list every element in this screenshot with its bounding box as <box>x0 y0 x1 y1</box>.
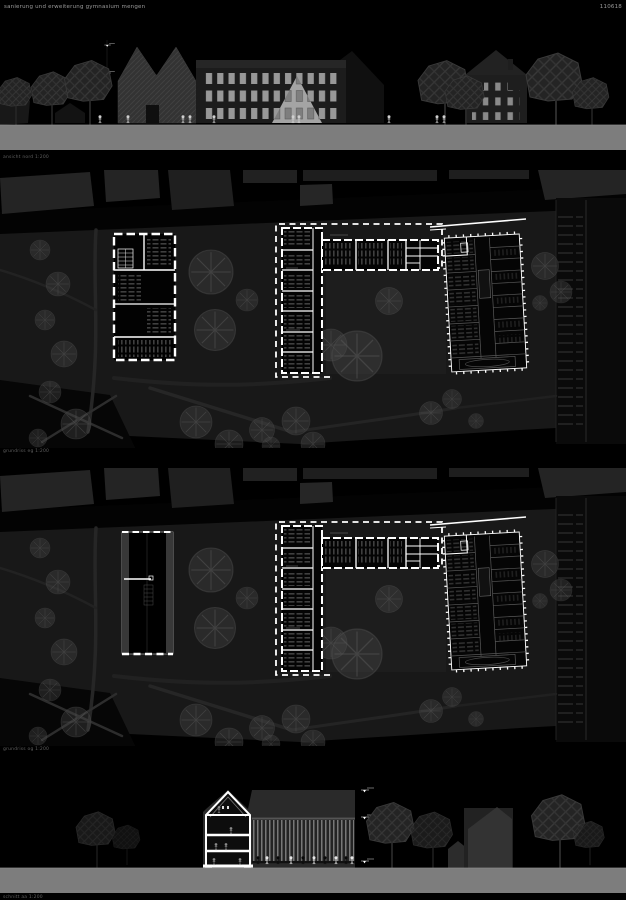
site-plan-upper-panel <box>0 468 626 756</box>
ground-band <box>0 125 626 150</box>
panel-label: ansicht nord 1:200 <box>3 154 49 160</box>
ground-band <box>0 868 626 893</box>
plan-left-building-roof <box>122 532 173 654</box>
panel-label: schnitt aa 1:200 <box>3 894 43 900</box>
presentation-board: sanierung und erweiterung gymnasium meng… <box>0 0 626 900</box>
site-plan-ground-panel <box>0 170 626 458</box>
long-school-building <box>196 60 346 123</box>
plan-left-building-eg <box>114 234 175 360</box>
panel-label: grundriss eg 1:200 <box>3 448 49 454</box>
page-title: sanierung und erweiterung gymnasium meng… <box>4 4 146 10</box>
sheet-number: 110618 <box>600 4 622 10</box>
board-svg: sanierung und erweiterung gymnasium meng… <box>0 0 626 900</box>
panel-label: grundriss og 1:200 <box>3 746 49 752</box>
